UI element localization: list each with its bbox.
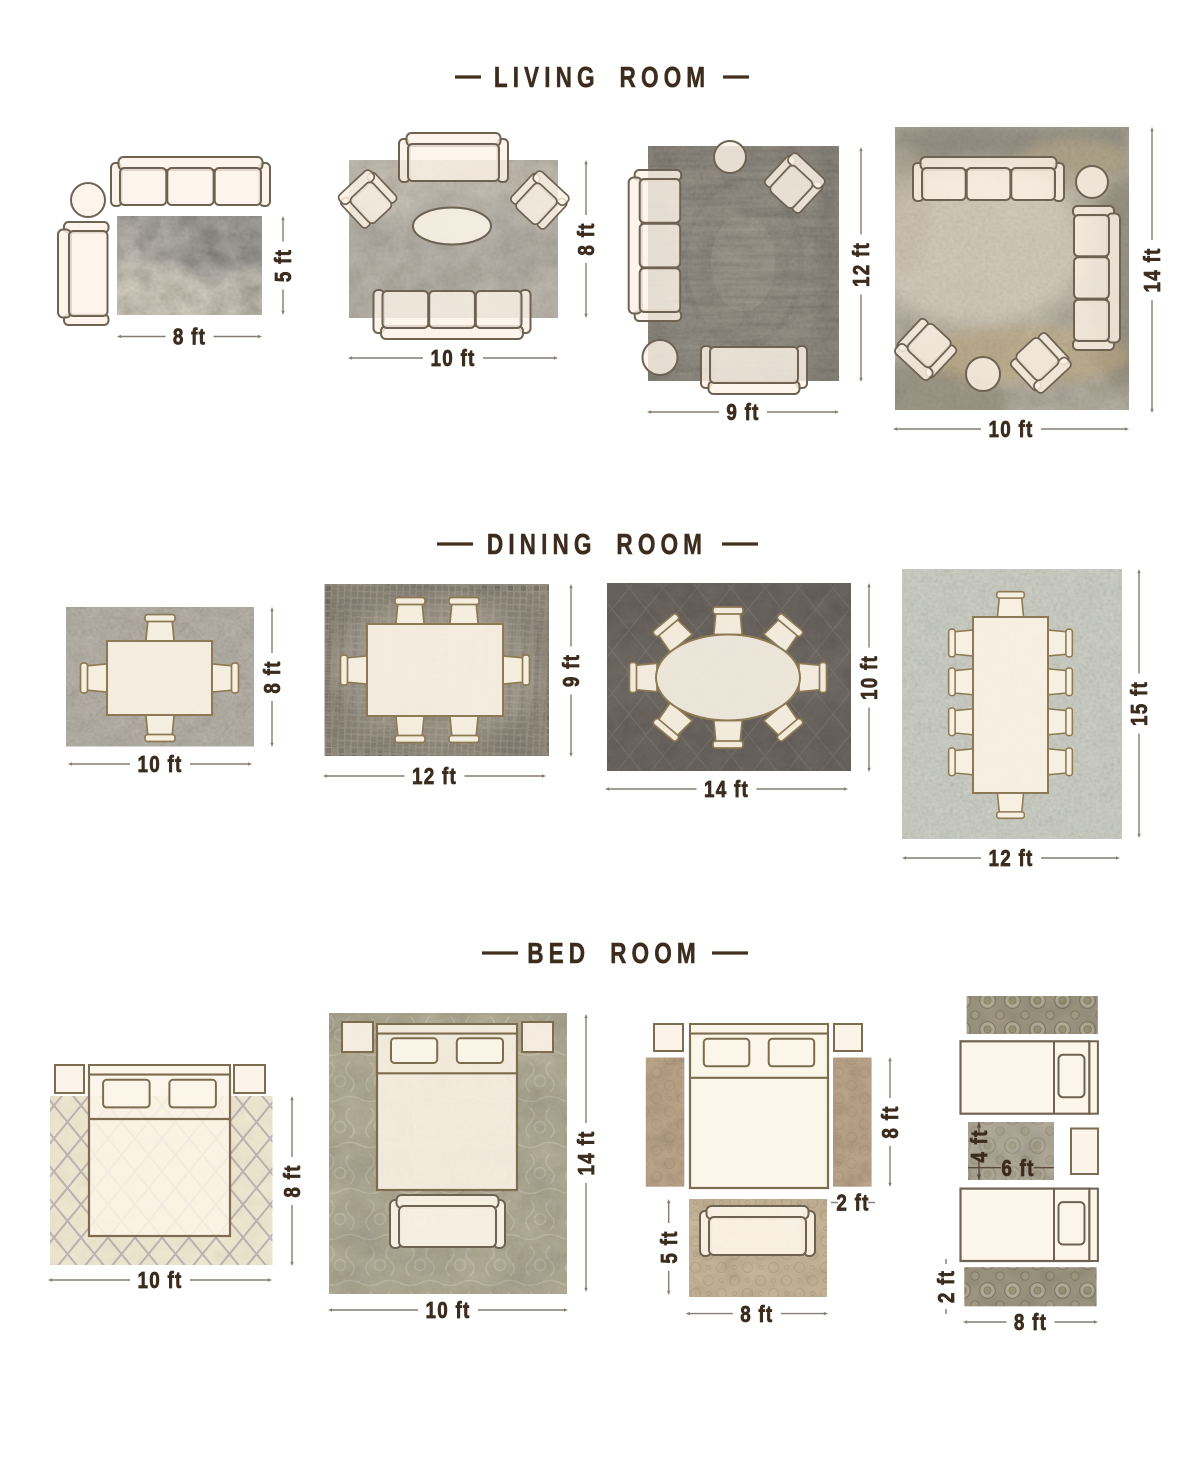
svg-text:15 ft: 15 ft (1128, 681, 1153, 726)
svg-text:10 ft: 10 ft (431, 347, 476, 372)
svg-text:6 ft: 6 ft (1001, 1156, 1034, 1181)
svg-text:2 ft: 2 ft (836, 1191, 869, 1216)
svg-text:BED ROOM: BED ROOM (527, 936, 701, 969)
svg-text:14 ft: 14 ft (1141, 248, 1166, 293)
svg-text:10 ft: 10 ft (138, 753, 183, 778)
svg-text:14 ft: 14 ft (704, 778, 749, 803)
svg-text:8 ft: 8 ft (173, 325, 206, 350)
svg-text:12 ft: 12 ft (412, 765, 457, 790)
svg-text:8 ft: 8 ft (879, 1105, 904, 1138)
svg-text:5 ft: 5 ft (657, 1230, 682, 1263)
svg-text:8 ft: 8 ft (1014, 1311, 1047, 1336)
svg-text:8 ft: 8 ft (575, 222, 600, 255)
svg-text:12 ft: 12 ft (989, 847, 1034, 872)
svg-text:8 ft: 8 ft (740, 1302, 773, 1327)
svg-text:10 ft: 10 ft (426, 1299, 471, 1324)
svg-text:10 ft: 10 ft (858, 655, 883, 700)
svg-text:2 ft: 2 ft (935, 1270, 960, 1303)
svg-text:14 ft: 14 ft (575, 1131, 600, 1176)
svg-text:10 ft: 10 ft (138, 1269, 183, 1294)
svg-text:5 ft: 5 ft (272, 249, 297, 282)
svg-text:8 ft: 8 ft (261, 660, 286, 693)
svg-text:LIVING ROOM: LIVING ROOM (494, 60, 710, 93)
svg-text:9 ft: 9 ft (560, 654, 585, 687)
svg-text:8 ft: 8 ft (281, 1164, 306, 1197)
svg-text:9 ft: 9 ft (726, 401, 759, 426)
svg-text:12 ft: 12 ft (850, 242, 875, 287)
svg-text:4 ft: 4 ft (968, 1129, 993, 1162)
svg-text:10 ft: 10 ft (989, 418, 1034, 443)
svg-text:DINING ROOM: DINING ROOM (487, 527, 707, 560)
